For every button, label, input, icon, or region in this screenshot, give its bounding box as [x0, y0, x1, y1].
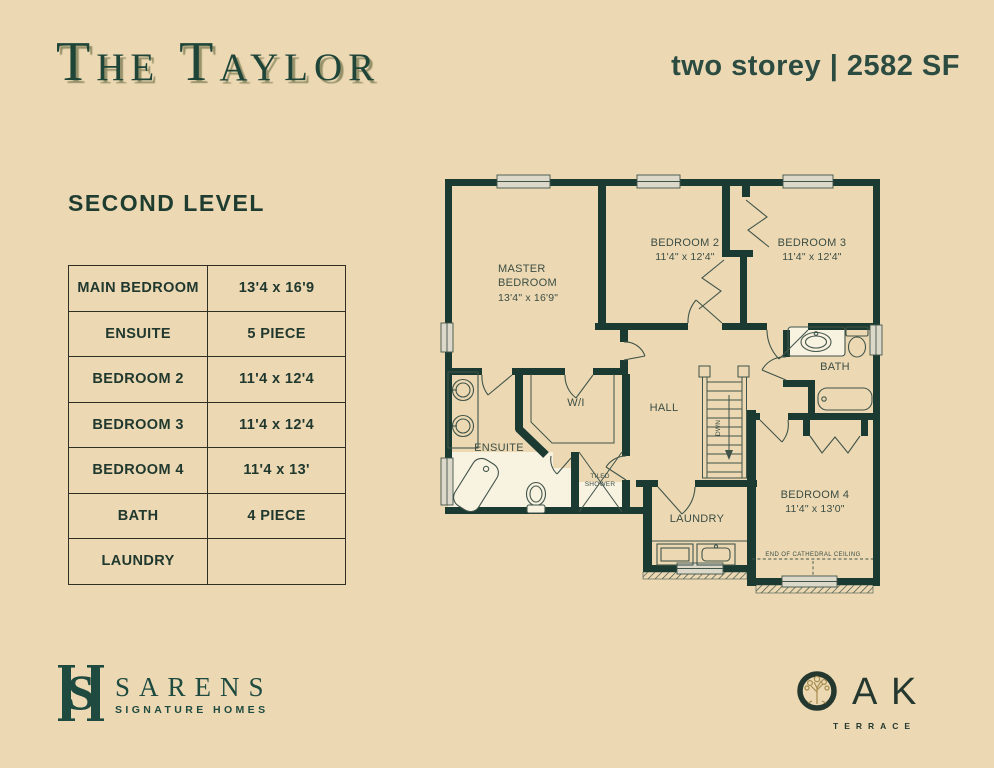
- oak-tree-icon: [805, 676, 829, 704]
- stairs-dwn-label: DWN: [715, 420, 722, 436]
- room-spec-table: MAIN BEDROOM 13'4 x 16'9 ENSUITE 5 PIECE…: [68, 265, 346, 585]
- oak-tagline: TERRACE: [833, 721, 936, 731]
- svg-text:11'4" x 12'4": 11'4" x 12'4": [782, 251, 841, 263]
- svg-text:MASTER: MASTER: [498, 263, 546, 275]
- svg-text:A: A: [852, 671, 878, 713]
- room-wi-label: W/I: [567, 397, 584, 409]
- laundry-fixtures: [652, 541, 747, 565]
- room-hall-label: HALL: [650, 402, 679, 414]
- room-dims-cell: [208, 539, 346, 585]
- room-bedroom-4: BEDROOM 4 11'4" x 13'0": [781, 489, 850, 515]
- room-tiled-shower-label: TILED SHOWER: [585, 473, 616, 488]
- sarens-tagline: SIGNATURE HOMES: [115, 704, 273, 716]
- table-row: LAUNDRY: [69, 539, 346, 585]
- room-bedroom-3: BEDROOM 3 11'4" x 12'4": [778, 237, 847, 263]
- room-dims-cell: 11'4 x 13': [208, 448, 346, 494]
- room-dims-cell: 4 PIECE: [208, 493, 346, 539]
- oak-wordmark: A K: [796, 668, 932, 714]
- sarens-name: SARENS: [115, 674, 273, 701]
- room-bedroom-2: BEDROOM 2 11'4" x 12'4": [651, 237, 720, 263]
- svg-text:BEDROOM: BEDROOM: [498, 277, 557, 289]
- page-title: The Taylor: [56, 30, 380, 94]
- washer-icon: [657, 544, 693, 565]
- svg-text:S: S: [67, 664, 95, 720]
- laundry-sink-icon: [697, 544, 735, 565]
- room-dims-cell: 11'4 x 12'4: [208, 402, 346, 448]
- table-row: BEDROOM 4 11'4 x 13': [69, 448, 346, 494]
- sarens-monogram-icon: S: [56, 662, 110, 724]
- room-name-cell: BEDROOM 4: [69, 448, 208, 494]
- staircase: [699, 366, 749, 478]
- room-dims-cell: 13'4 x 16'9: [208, 266, 346, 312]
- svg-text:11'4" x 13'0": 11'4" x 13'0": [785, 503, 844, 515]
- cathedral-ceiling-label: END OF CATHEDRAL CEILING: [765, 552, 860, 558]
- table-row: BATH 4 PIECE: [69, 493, 346, 539]
- room-bath-label: BATH: [820, 361, 850, 373]
- svg-text:13'4" x 16'9": 13'4" x 16'9": [498, 292, 558, 304]
- svg-text:BEDROOM 2: BEDROOM 2: [651, 237, 720, 249]
- room-name-cell: MAIN BEDROOM: [69, 266, 208, 312]
- svg-text:TILED: TILED: [590, 473, 610, 480]
- brochure-page: The Taylor two storey | 2582 SF SECOND L…: [0, 0, 994, 768]
- room-dims-cell: 11'4 x 12'4: [208, 357, 346, 403]
- room-laundry-label: LAUNDRY: [670, 513, 725, 525]
- room-name-cell: BEDROOM 2: [69, 357, 208, 403]
- sarens-wordmark: SARENS SIGNATURE HOMES: [115, 662, 273, 716]
- cathedral-ceiling-line: [752, 559, 873, 576]
- room-dims-cell: 5 PIECE: [208, 311, 346, 357]
- room-name-cell: LAUNDRY: [69, 539, 208, 585]
- table-row: BEDROOM 3 11'4 x 12'4: [69, 402, 346, 448]
- storey-sqft-label: two storey | 2582 SF: [671, 50, 960, 83]
- room-name-cell: BATH: [69, 493, 208, 539]
- level-heading: SECOND LEVEL: [68, 190, 265, 217]
- room-name-cell: BEDROOM 3: [69, 402, 208, 448]
- table-row: ENSUITE 5 PIECE: [69, 311, 346, 357]
- table-row: MAIN BEDROOM 13'4 x 16'9: [69, 266, 346, 312]
- oak-terrace-logo: A K TERRACE: [796, 668, 936, 731]
- svg-text:K: K: [891, 671, 916, 713]
- svg-text:BEDROOM 4: BEDROOM 4: [781, 489, 850, 501]
- room-name-cell: ENSUITE: [69, 311, 208, 357]
- room-master-bedroom: MASTER BEDROOM 13'4" x 16'9": [498, 263, 558, 304]
- toilet-icon: [846, 327, 868, 357]
- room-ensuite-label: ENSUITE: [474, 442, 524, 454]
- svg-text:SHOWER: SHOWER: [585, 481, 616, 488]
- sarens-logo: S SARENS SIGNATURE HOMES: [56, 662, 273, 724]
- table-row: BEDROOM 2 11'4 x 12'4: [69, 357, 346, 403]
- svg-text:11'4" x 12'4": 11'4" x 12'4": [655, 251, 714, 263]
- floor-plan: MASTER BEDROOM 13'4" x 16'9" BEDROOM 2 1…: [430, 160, 890, 600]
- svg-text:BEDROOM 3: BEDROOM 3: [778, 237, 847, 249]
